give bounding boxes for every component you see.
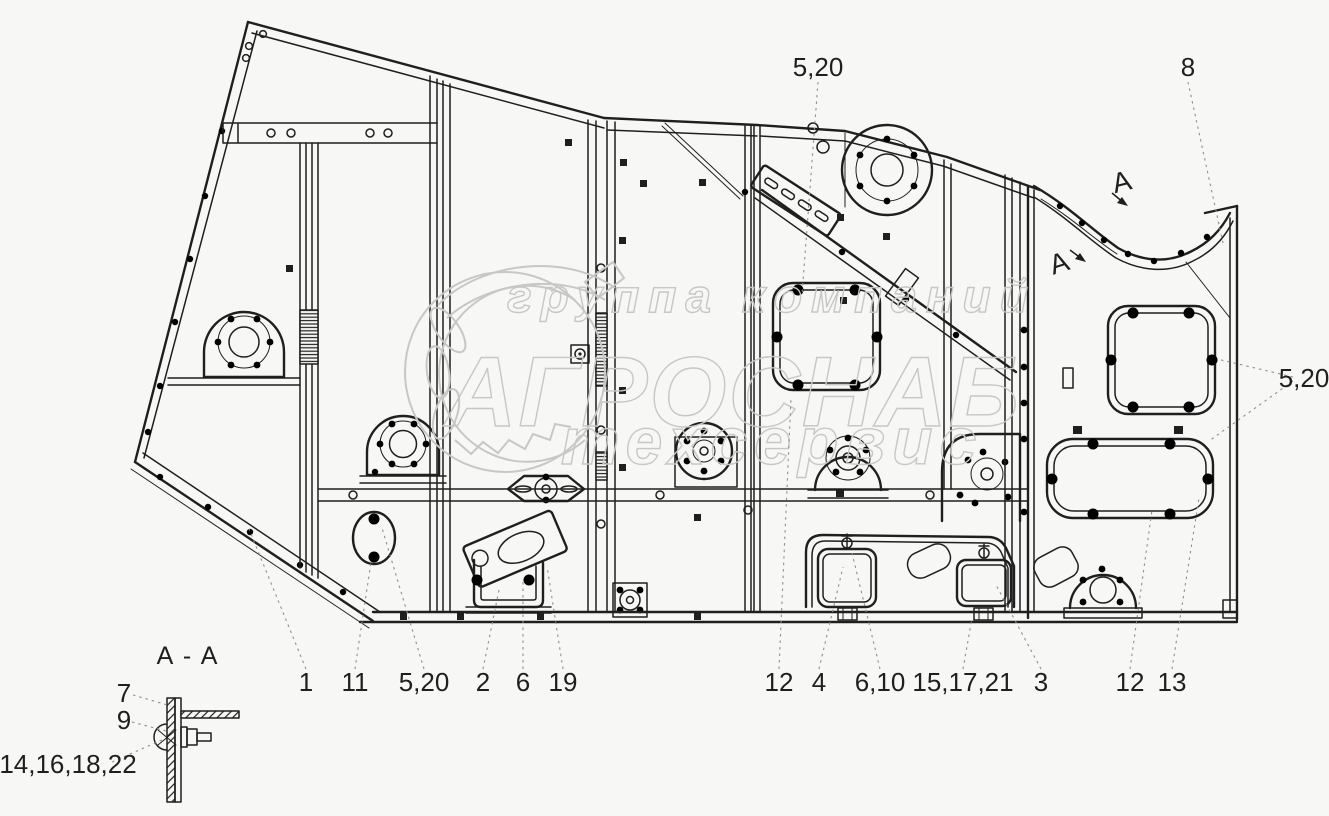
callout-1: 1 — [299, 667, 313, 697]
callout-14-16-18-22: 14,16,18,22 — [0, 749, 137, 779]
callout-top-5-20: 5,20 — [793, 52, 844, 82]
cut-mark-a-lower: A — [1045, 245, 1073, 280]
callout-6-10: 6,10 — [855, 667, 906, 697]
callout-13: 13 — [1158, 667, 1187, 697]
watermark-line-top: группа компаний — [507, 270, 1037, 322]
watermark-line-bottom: техсервис — [561, 404, 983, 478]
callout-15-17-21: 15,17,21 — [912, 667, 1013, 697]
diagram-canvas: группа компаний АГРОСНАБ техсервис 5,20 … — [0, 0, 1329, 816]
section-title: A - A — [157, 642, 220, 670]
callout-right-5-20: 5,20 — [1279, 363, 1329, 393]
left-door — [818, 534, 876, 607]
callout-6: 6 — [516, 667, 530, 697]
right-panel — [1005, 175, 1237, 620]
oval-cover — [353, 512, 395, 564]
callout-9: 9 — [117, 705, 131, 735]
callout-19: 19 — [549, 667, 578, 697]
callout-4: 4 — [812, 667, 826, 697]
callout-12b: 12 — [1116, 667, 1145, 697]
door-feet — [838, 608, 993, 620]
callout-top-8: 8 — [1181, 52, 1195, 82]
callout-3: 3 — [1034, 667, 1048, 697]
callout-5-20-left: 5,20 — [399, 667, 450, 697]
side-panel-left — [131, 22, 604, 628]
callout-7: 7 — [117, 678, 131, 708]
callout-12a: 12 — [765, 667, 794, 697]
right-door — [957, 544, 1011, 606]
mid-rail — [318, 489, 1028, 501]
lower-hatch-right — [1047, 439, 1214, 520]
callout-2: 2 — [476, 667, 490, 697]
section-detail-drawing — [154, 698, 239, 802]
watermark: группа компаний АГРОСНАБ техсервис — [405, 262, 1037, 478]
bottom-bin — [806, 534, 1014, 620]
callout-11: 11 — [342, 667, 369, 697]
square-hatch-right — [1106, 306, 1218, 414]
technical-drawing: группа компаний АГРОСНАБ техсервис 5,20 … — [0, 0, 1329, 816]
